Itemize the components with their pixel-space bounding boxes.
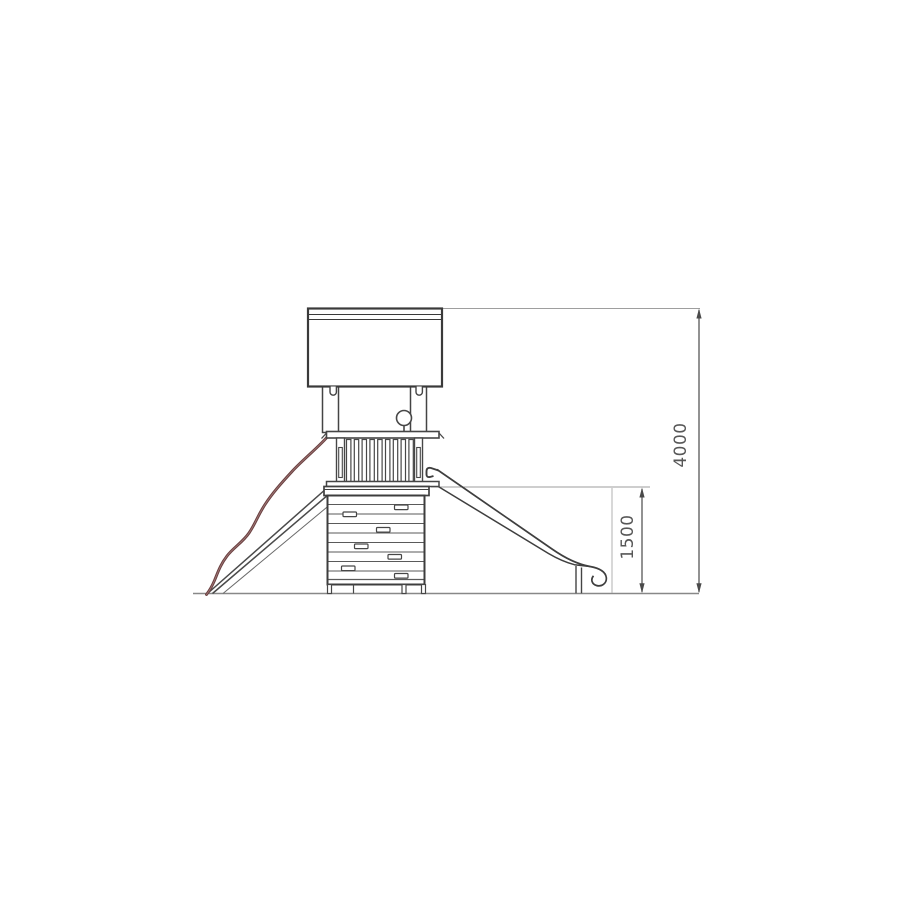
roof-hook-right xyxy=(416,387,422,396)
roof-hooks xyxy=(330,387,422,396)
climbing-hold xyxy=(388,555,402,560)
tower-legs xyxy=(328,585,426,594)
climbing-hold xyxy=(342,566,356,571)
balusters xyxy=(347,440,414,482)
arrowhead-down-icon xyxy=(696,583,701,593)
dimension-label-platform-height: 1500 xyxy=(618,514,638,559)
arrowhead-up-icon xyxy=(696,309,701,319)
climbing-hold xyxy=(355,544,369,549)
slide-lower-edge xyxy=(430,482,590,567)
dimension-label-total-height: 4000 xyxy=(671,422,691,467)
climbing-hold xyxy=(395,574,409,579)
arrowhead-up-icon xyxy=(639,488,644,498)
arrowhead-down-icon xyxy=(639,583,644,593)
slide-support-leg xyxy=(576,566,582,593)
roof-hook-left xyxy=(330,387,336,396)
platform-deck xyxy=(324,487,429,496)
tower-posts xyxy=(323,387,427,433)
climbing-ramp xyxy=(208,487,339,594)
climbing-hold xyxy=(343,512,357,517)
drawing-canvas: 4000 1500 xyxy=(0,0,900,900)
ball-finial xyxy=(397,411,412,433)
dimension-1500: 1500 xyxy=(618,488,645,594)
climbing-hold xyxy=(395,505,409,510)
slide xyxy=(427,468,607,586)
handrail xyxy=(327,432,440,439)
dimension-4000: 4000 xyxy=(671,309,702,594)
slide-entry-lip xyxy=(427,468,439,477)
climbing-wall-panel xyxy=(328,496,425,585)
railing-with-balusters xyxy=(322,432,445,487)
elevation-drawing: 4000 1500 xyxy=(0,0,900,900)
climbing-rope xyxy=(207,435,330,595)
climbing-hold xyxy=(377,528,391,533)
roof xyxy=(308,309,442,387)
